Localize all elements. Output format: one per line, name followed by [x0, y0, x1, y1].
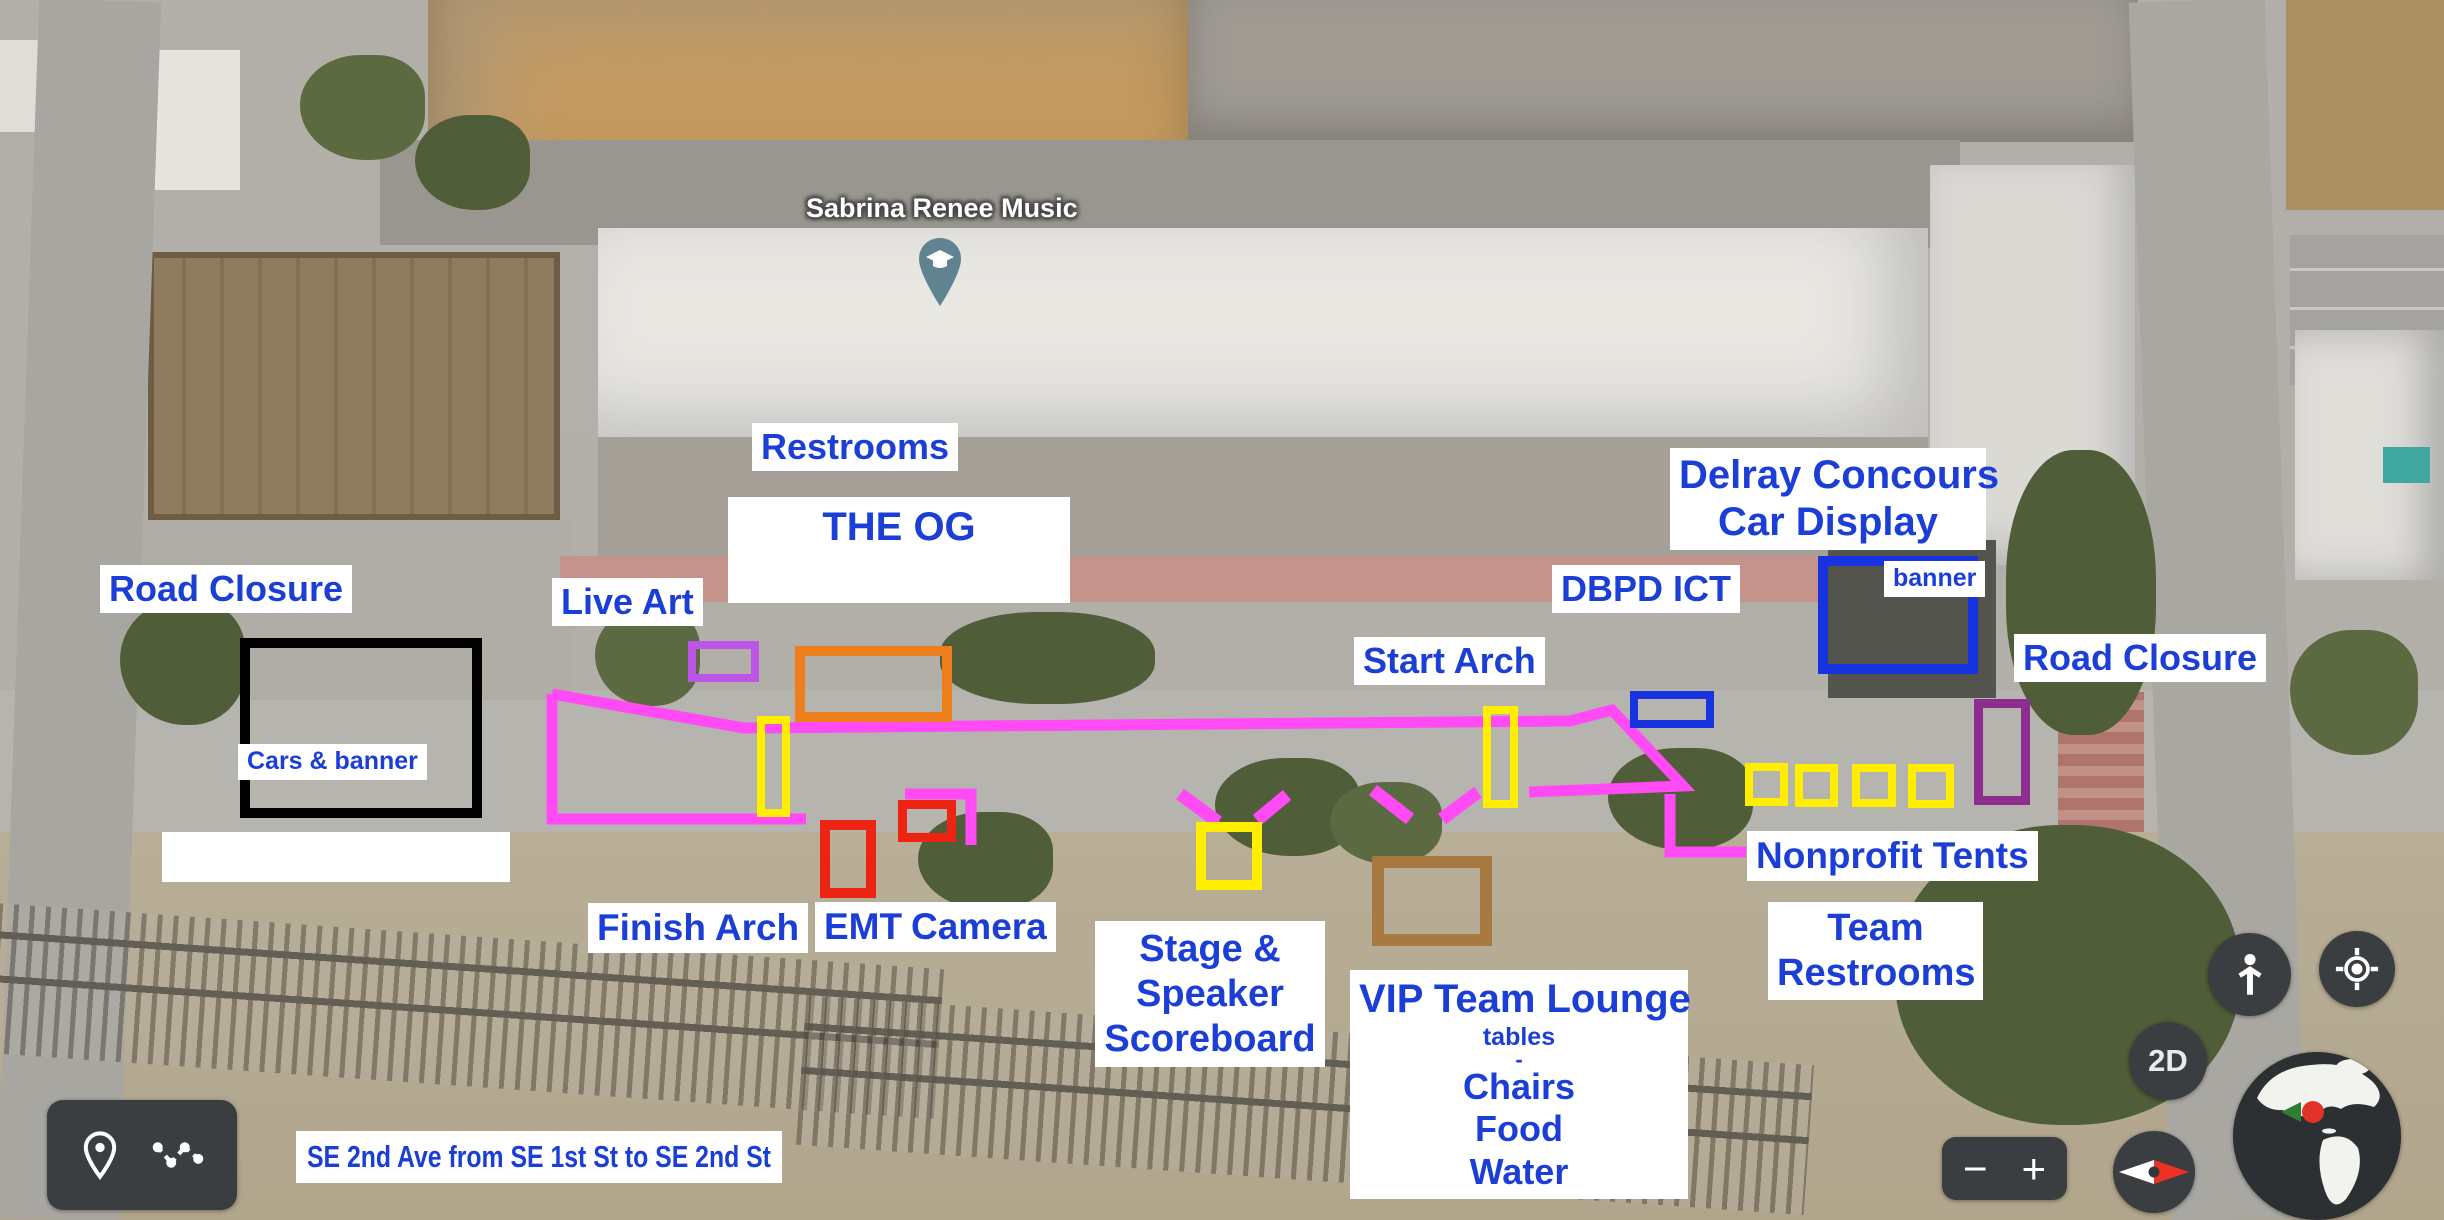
- globe-icon: [2233, 1052, 2401, 1220]
- label-blank-strip: [162, 832, 510, 882]
- globe-pin-dot: [2302, 1101, 2324, 1123]
- nonprofit-tent-box: [1852, 764, 1896, 807]
- label-restrooms: Restrooms: [752, 423, 958, 471]
- label-road-closure-left: Road Closure: [100, 565, 352, 613]
- nonprofit-tent-box: [1795, 764, 1838, 807]
- label-nonprofit-tents: Nonprofit Tents: [1747, 831, 2038, 881]
- label-live-art: Live Art: [552, 578, 703, 626]
- tree: [1330, 782, 1442, 864]
- team-line: Team: [1777, 906, 1974, 951]
- orange-staging-box: [795, 646, 952, 722]
- label-banner: banner: [1884, 561, 1985, 597]
- satellite-main-building-roof: [598, 228, 1928, 440]
- vip-chairs: Chairs: [1359, 1066, 1679, 1108]
- camera-box: [898, 800, 956, 842]
- zoom-out-button[interactable]: −: [1946, 1148, 2005, 1190]
- place-label[interactable]: Sabrina Renee Music: [806, 193, 1078, 224]
- emt-box: [820, 820, 876, 898]
- vip-title: VIP Team Lounge: [1359, 976, 1679, 1023]
- label-delray-concours: Delray Concours Car Display: [1670, 448, 1986, 550]
- team-line: Restrooms: [1777, 951, 1974, 996]
- satellite-pool: [2383, 447, 2430, 483]
- stage-line: Speaker: [1104, 972, 1316, 1017]
- delray-line: Car Display: [1679, 499, 1977, 546]
- the-og-text: THE OG: [737, 504, 1061, 551]
- tree: [2290, 630, 2418, 755]
- nonprofit-tent-box: [1745, 763, 1788, 806]
- vip-food: Food: [1359, 1108, 1679, 1150]
- label-team-restrooms: Team Restrooms: [1768, 902, 1983, 1000]
- place-pin-icon[interactable]: [916, 236, 964, 308]
- tree: [1608, 748, 1753, 850]
- add-path-icon[interactable]: [150, 1135, 204, 1175]
- stage-box: [1196, 822, 1262, 890]
- my-location-icon: [2335, 947, 2379, 991]
- vip-water: Water: [1359, 1151, 1679, 1193]
- label-vip-lounge: VIP Team Lounge tables - Chairs Food Wat…: [1350, 970, 1688, 1199]
- label-the-og: THE OG: [728, 497, 1070, 603]
- start-arch-box: [1483, 706, 1518, 808]
- satellite-warehouse-roof: [148, 252, 560, 520]
- label-dbpd-ict: DBPD ICT: [1552, 565, 1740, 613]
- label-road-closure-right: Road Closure: [2014, 634, 2266, 682]
- pegman-button[interactable]: [2208, 933, 2291, 1016]
- drawing-tools-panel: [47, 1100, 237, 1210]
- compass-button[interactable]: [2113, 1131, 2195, 1213]
- globe-button[interactable]: [2233, 1052, 2401, 1220]
- live-art-box: [688, 641, 759, 682]
- tree: [300, 55, 425, 160]
- placemark-pin-icon[interactable]: [80, 1130, 120, 1180]
- label-emt: EMT: [815, 902, 911, 952]
- tree: [2006, 450, 2156, 735]
- 2d-mode-label: 2D: [2148, 1043, 2188, 1079]
- vip-dash: -: [1359, 1053, 1679, 1066]
- tree: [120, 600, 245, 725]
- zoom-in-button[interactable]: +: [2005, 1148, 2064, 1190]
- stage-line: Stage &: [1104, 927, 1316, 972]
- label-street-note: SE 2nd Ave from SE 1st St to SE 2nd St: [296, 1131, 782, 1183]
- globe-cuba: [2322, 1128, 2336, 1133]
- pegman-icon: [2230, 952, 2270, 998]
- my-location-button[interactable]: [2319, 931, 2395, 1007]
- tree: [940, 612, 1155, 704]
- zoom-control: − +: [1942, 1137, 2067, 1200]
- 2d-mode-button[interactable]: 2D: [2129, 1022, 2207, 1100]
- tree: [415, 115, 530, 210]
- street-note-text: SE 2nd Ave from SE 1st St to SE 2nd St: [307, 1139, 771, 1176]
- label-finish-arch: Finish Arch: [588, 903, 808, 953]
- satellite-construction-right: [1188, 0, 2138, 142]
- road-closure-purple-box: [1974, 699, 2030, 805]
- cars-banner-zone-box: [240, 638, 482, 818]
- label-stage: Stage & Speaker Scoreboard: [1095, 921, 1325, 1067]
- map-canvas[interactable]: Road Closure Cars & banner Live Art Rest…: [0, 0, 2444, 1220]
- label-camera: Camera: [902, 902, 1056, 952]
- start-blue-box: [1630, 691, 1714, 728]
- vip-team-lounge-box: [1372, 856, 1492, 946]
- stage-line: Scoreboard: [1104, 1017, 1316, 1062]
- delray-line: Delray Concours: [1679, 452, 1977, 499]
- finish-arch-box: [757, 716, 790, 817]
- compass-needle-icon: [2113, 1131, 2195, 1213]
- label-cars-banner: Cars & banner: [238, 744, 427, 780]
- nonprofit-tent-box: [1908, 764, 1954, 808]
- satellite-topright-scrub: [2286, 0, 2444, 210]
- label-start-arch: Start Arch: [1354, 637, 1545, 685]
